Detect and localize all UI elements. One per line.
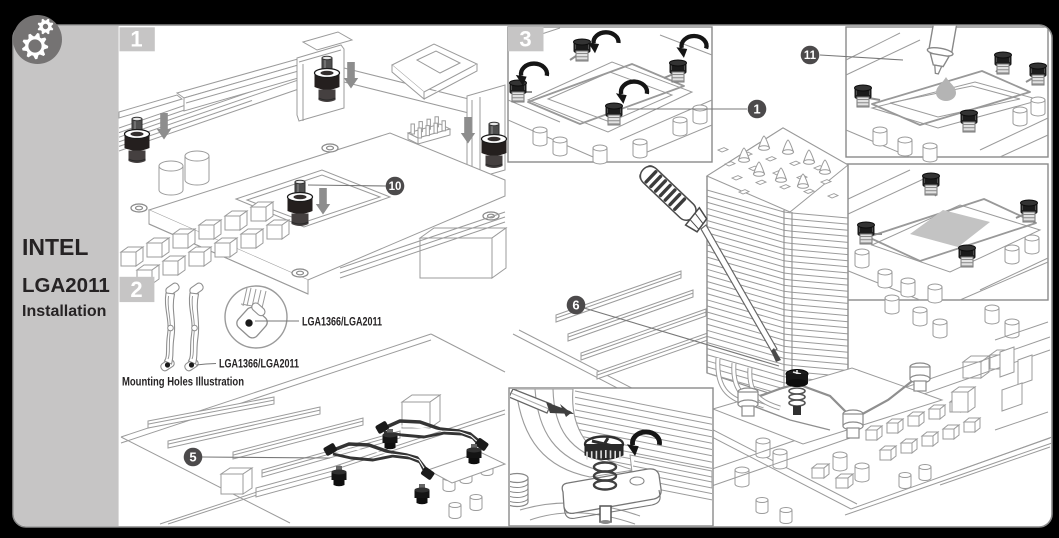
svg-text:1: 1 <box>753 102 760 117</box>
svg-text:2: 2 <box>130 277 142 302</box>
svg-text:LGA1366/LGA2011: LGA1366/LGA2011 <box>302 317 382 329</box>
svg-text:10: 10 <box>389 181 402 193</box>
svg-text:Mounting Holes Illustration: Mounting Holes Illustration <box>122 377 244 389</box>
svg-text:6: 6 <box>572 298 579 313</box>
svg-text:11: 11 <box>804 50 817 62</box>
svg-text:LGA1366/LGA2011: LGA1366/LGA2011 <box>219 359 299 371</box>
svg-text:1: 1 <box>130 27 142 52</box>
svg-text:Installation: Installation <box>22 303 106 320</box>
svg-text:LGA2011: LGA2011 <box>22 274 110 297</box>
svg-text:5: 5 <box>189 450 196 465</box>
svg-text:3: 3 <box>519 26 531 51</box>
svg-text:INTEL: INTEL <box>22 234 88 260</box>
